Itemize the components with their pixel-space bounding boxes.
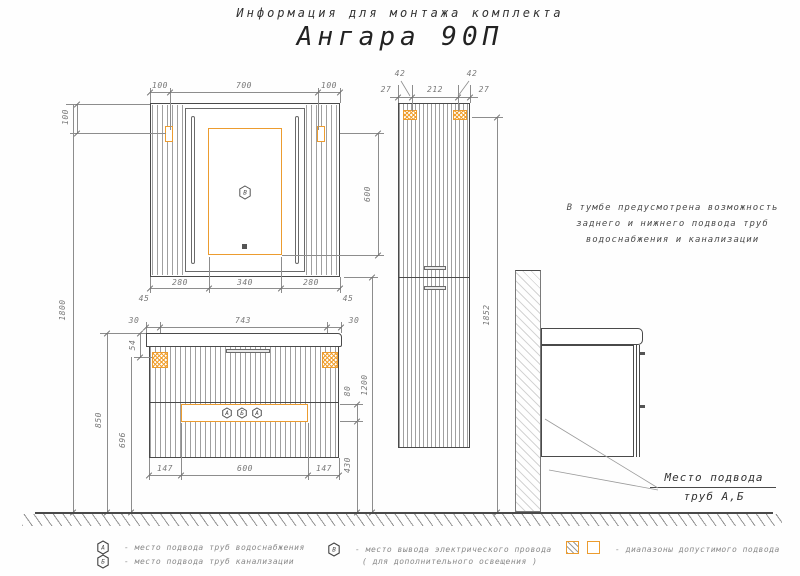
legend-ranges-text: - диапазоны допустимого подвода xyxy=(615,545,780,555)
svg-text:А: А xyxy=(100,545,105,552)
dim-label: 696 xyxy=(118,425,128,455)
tall-cabinet-front-view xyxy=(398,103,470,448)
dim-label: 743 xyxy=(225,316,261,326)
vanity-drawer-handle xyxy=(226,349,270,353)
mirror-door-handle-left xyxy=(191,116,195,264)
dim-label: 1800 xyxy=(58,295,68,325)
dim-label: 100 xyxy=(315,81,343,91)
dim-label: 280 xyxy=(293,278,329,288)
leader-line xyxy=(401,81,410,96)
vanity-mount-bracket-left xyxy=(152,352,168,368)
legend-range-square-cross xyxy=(587,541,600,554)
legend-hexagon-water-icon: А xyxy=(98,541,108,554)
dim-label: 430 xyxy=(343,450,353,480)
dim-label: 1852 xyxy=(482,300,492,330)
dim-label: 45 xyxy=(134,294,154,304)
tall-cabinet-handle-lower xyxy=(424,286,446,290)
floor-hatch xyxy=(22,514,782,526)
mirror-mount-bracket-left xyxy=(165,126,173,142)
vanity-allowed-range-strip xyxy=(181,404,308,422)
legend-sewer-text: - место подвода труб канализации xyxy=(124,557,294,567)
dim-label: 212 xyxy=(417,85,453,95)
tall-cabinet-handle-upper xyxy=(424,266,446,270)
note-line-3: водоснабжения и канализации xyxy=(550,232,795,248)
leader-line xyxy=(549,470,658,490)
dim-label: 100 xyxy=(61,102,71,132)
page-title: Ангара 90П xyxy=(0,22,800,52)
svg-text:Б: Б xyxy=(101,559,105,566)
dim-label: 600 xyxy=(363,179,373,209)
dim-label: 42 xyxy=(390,69,410,79)
dim-label: 700 xyxy=(214,81,274,91)
installation-drawing: Информация для монтажа комплекта Ангара … xyxy=(0,0,800,576)
wall-section xyxy=(515,270,541,512)
dim-label: 54 xyxy=(128,330,138,360)
legend-hexagon-electric-icon: В xyxy=(329,543,339,556)
vanity-side-countertop xyxy=(541,328,643,345)
dim-label: 147 xyxy=(147,464,183,474)
vanity-mount-bracket-right xyxy=(322,352,338,368)
dim-label: 27 xyxy=(377,85,395,95)
pipe-label-line1: Место подвода xyxy=(653,471,775,484)
note-line-2: заднего и нижнего подвода труб xyxy=(550,216,795,232)
note-text: В тумбе предусмотрена возможность заднег… xyxy=(550,200,795,248)
svg-text:В: В xyxy=(332,547,336,554)
dim-label: 850 xyxy=(94,405,104,435)
dim-label: 600 xyxy=(227,464,263,474)
tall-cabinet-bracket-right xyxy=(453,110,467,120)
dim-label: 27 xyxy=(475,85,493,95)
legend-water-text: - место подвода труб водоснабжения xyxy=(124,543,305,553)
pipe-label-line2: труб А,Б xyxy=(653,490,775,503)
tall-cabinet-bracket-left xyxy=(403,110,417,120)
mirror-allowed-range-zone xyxy=(208,128,282,255)
dim-label: 30 xyxy=(124,316,144,326)
dim-label: 1200 xyxy=(360,370,370,400)
dim-label: 280 xyxy=(162,278,198,288)
side-handle-upper xyxy=(640,352,645,355)
dim-label: 30 xyxy=(344,316,364,326)
dim-label: 45 xyxy=(338,294,358,304)
note-line-1: В тумбе предусмотрена возможность xyxy=(550,200,795,216)
dim-label: 100 xyxy=(146,81,174,91)
mirror-door-handle-right xyxy=(295,116,299,264)
outlet-square-icon xyxy=(242,244,247,249)
side-handle-lower xyxy=(640,405,645,408)
legend-range-square-diagonal xyxy=(566,541,579,554)
drawing-subtitle: Информация для монтажа комплекта xyxy=(0,6,800,20)
legend-hexagon-sewer-icon: Б xyxy=(98,555,108,568)
legend-electric-text2: ( для дополнительного освещения ) xyxy=(362,557,537,567)
dim-label: 340 xyxy=(227,278,263,288)
dim-label: 147 xyxy=(306,464,342,474)
vanity-side-view xyxy=(541,345,634,457)
dim-label: 42 xyxy=(462,69,482,79)
vanity-countertop xyxy=(146,333,342,347)
dim-label: 80 xyxy=(343,376,353,406)
legend-electric-text: - место вывода электрического провода xyxy=(355,545,552,555)
